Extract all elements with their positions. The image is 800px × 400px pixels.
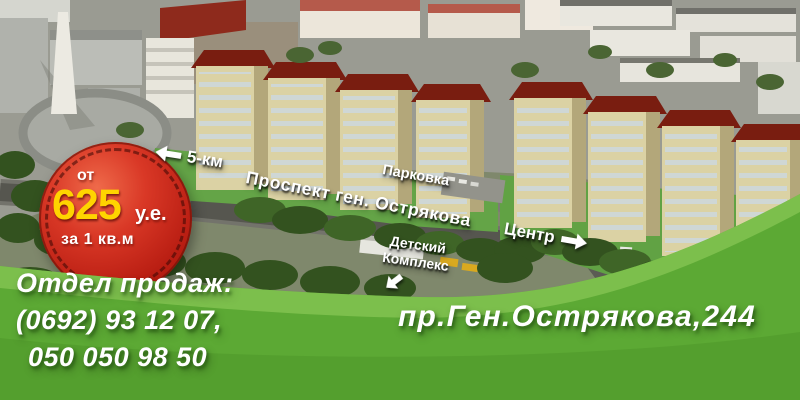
address-text: пр.Ген.Острякова,244 xyxy=(398,300,756,334)
kids-complex-label: Детский Комплекс xyxy=(378,232,452,299)
apartment-building xyxy=(509,82,593,228)
phone-number-2: 050 050 98 50 xyxy=(16,339,234,376)
apartment-building xyxy=(731,124,800,268)
badge-currency: у.е. xyxy=(135,204,167,224)
down-left-arrow-icon xyxy=(382,269,407,294)
sales-contacts: Отдел продаж: (0692) 93 12 07, 050 050 9… xyxy=(16,265,234,376)
badge-price: 625 xyxy=(52,184,121,227)
phone-number-1: (0692) 93 12 07, xyxy=(16,302,234,339)
left-arrow-icon xyxy=(154,144,182,164)
right-arrow-icon xyxy=(560,231,588,251)
apartment-building xyxy=(657,110,741,256)
apartment-building xyxy=(583,96,667,242)
ad-banner: от 625 у.е. за 1 кв.м 5-км Проспект ген.… xyxy=(0,0,800,400)
sales-title: Отдел продаж: xyxy=(16,265,234,302)
badge-per-unit: за 1 кв.м xyxy=(61,232,134,248)
